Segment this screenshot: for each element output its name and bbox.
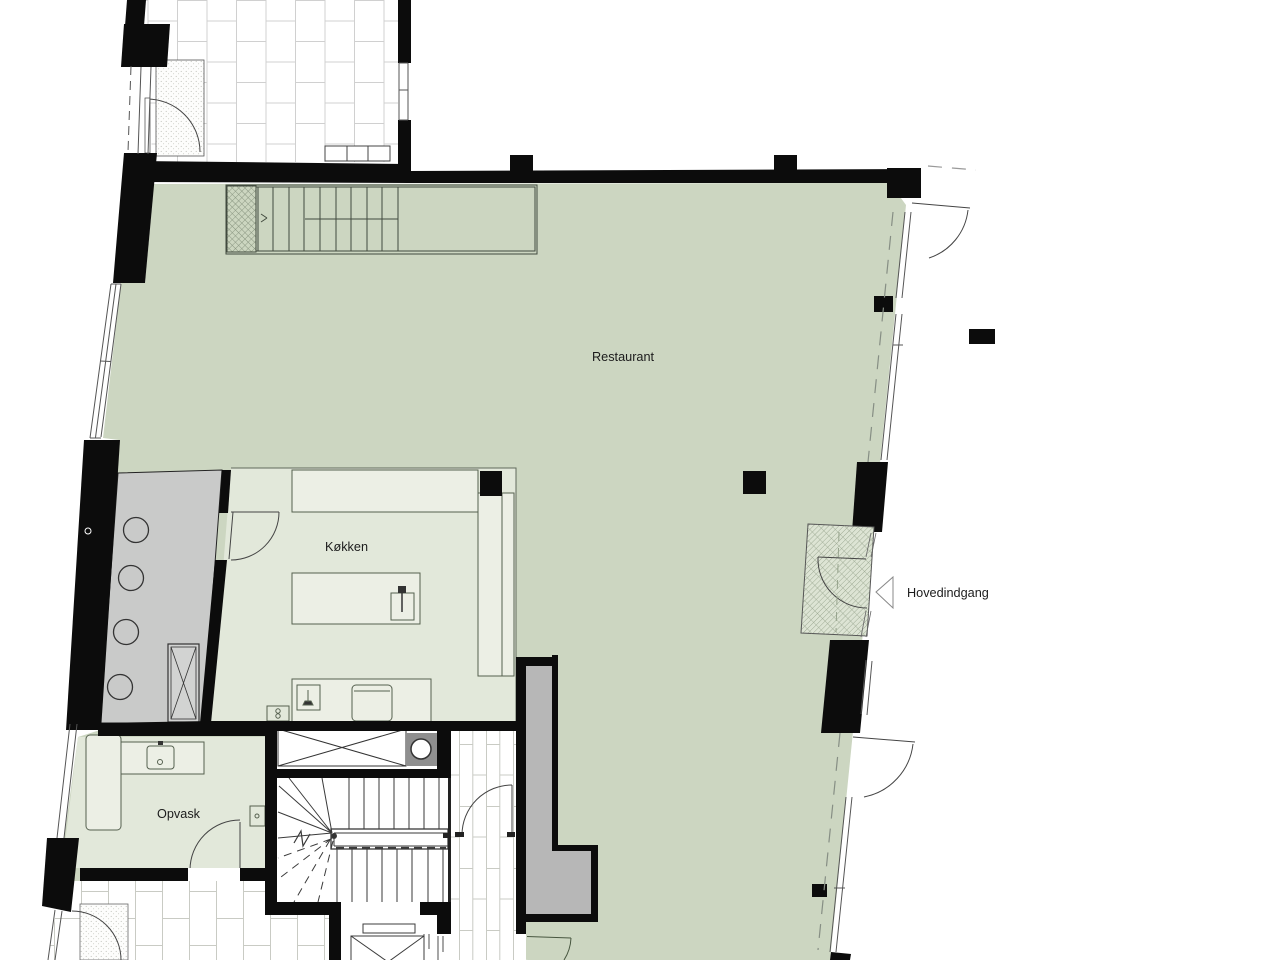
svg-text:Opvask: Opvask <box>157 807 201 821</box>
svg-text:Restaurant: Restaurant <box>592 350 655 364</box>
svg-text:Hovedindgang: Hovedindgang <box>907 586 989 600</box>
svg-text:Køkken: Køkken <box>325 540 368 554</box>
